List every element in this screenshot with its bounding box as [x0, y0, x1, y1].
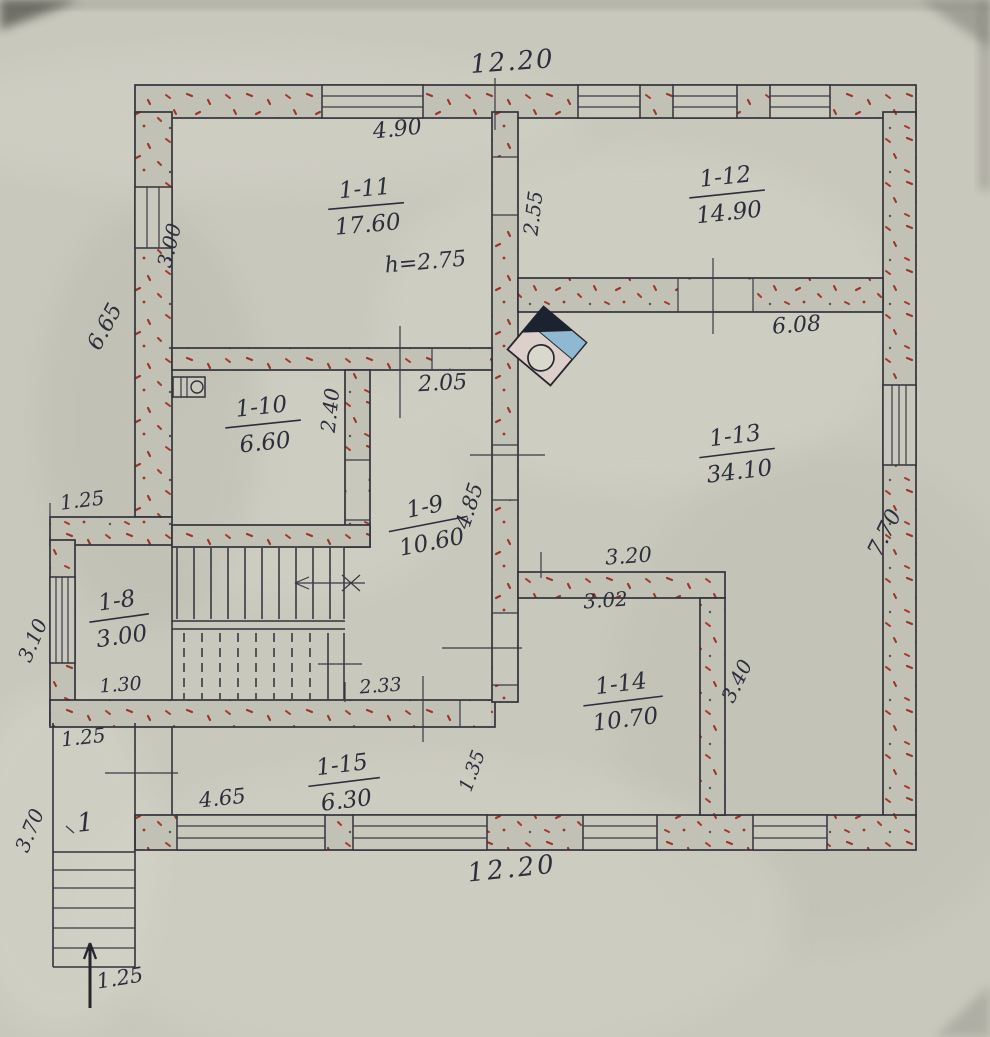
dim-top-width: 12.20: [469, 44, 555, 80]
window-stair-left: [50, 577, 75, 663]
dim-room-1-15-width: 4.65: [197, 784, 247, 813]
wall-1-10-bottom: [172, 525, 370, 547]
wall-1-14-right: [700, 598, 725, 815]
room-number-1-11: 1-11: [338, 174, 392, 204]
window-bottom-3: [583, 815, 657, 850]
room-number-1-10: 1-10: [234, 391, 288, 422]
dim-room-1-14-width-inner: 3.02: [582, 586, 628, 613]
window-top-1: [322, 85, 423, 118]
room-area-1-10: 6.60: [238, 427, 292, 458]
dim-porch-width: 1.25: [60, 723, 107, 752]
room-number-1-8: 1-8: [97, 586, 137, 617]
window-right: [883, 385, 916, 465]
window-bottom-4: [753, 815, 827, 850]
room-number-porch: 1: [76, 807, 95, 838]
dim-stair-width: 2.33: [358, 674, 403, 699]
dim-door-1-11: 2.05: [417, 370, 468, 398]
dim-room-1-8-width: 1.30: [99, 673, 143, 698]
room-number-1-12: 1-12: [698, 161, 752, 192]
window-bottom-1: [177, 815, 325, 850]
dim-room-1-14-width-outer: 3.20: [604, 542, 652, 569]
room-label-porch: 1: [76, 807, 95, 838]
wall-south-inner: [50, 700, 495, 727]
floor-plan-scan: 1-11 17.60 1-12 14.90 1-13 34.10 1-10 6.…: [0, 0, 990, 1037]
wall-left-upper: [135, 112, 172, 517]
window-top-3: [673, 85, 737, 118]
dim-room-1-12-width: 6.08: [771, 311, 822, 339]
window-top-2: [578, 85, 640, 118]
dim-room-1-10-depth: 2.40: [316, 387, 345, 435]
dim-window-1-11: 4.90: [371, 115, 423, 145]
sink-icon: [173, 377, 205, 397]
window-top-4: [770, 85, 830, 118]
window-bottom-2: [353, 815, 487, 850]
